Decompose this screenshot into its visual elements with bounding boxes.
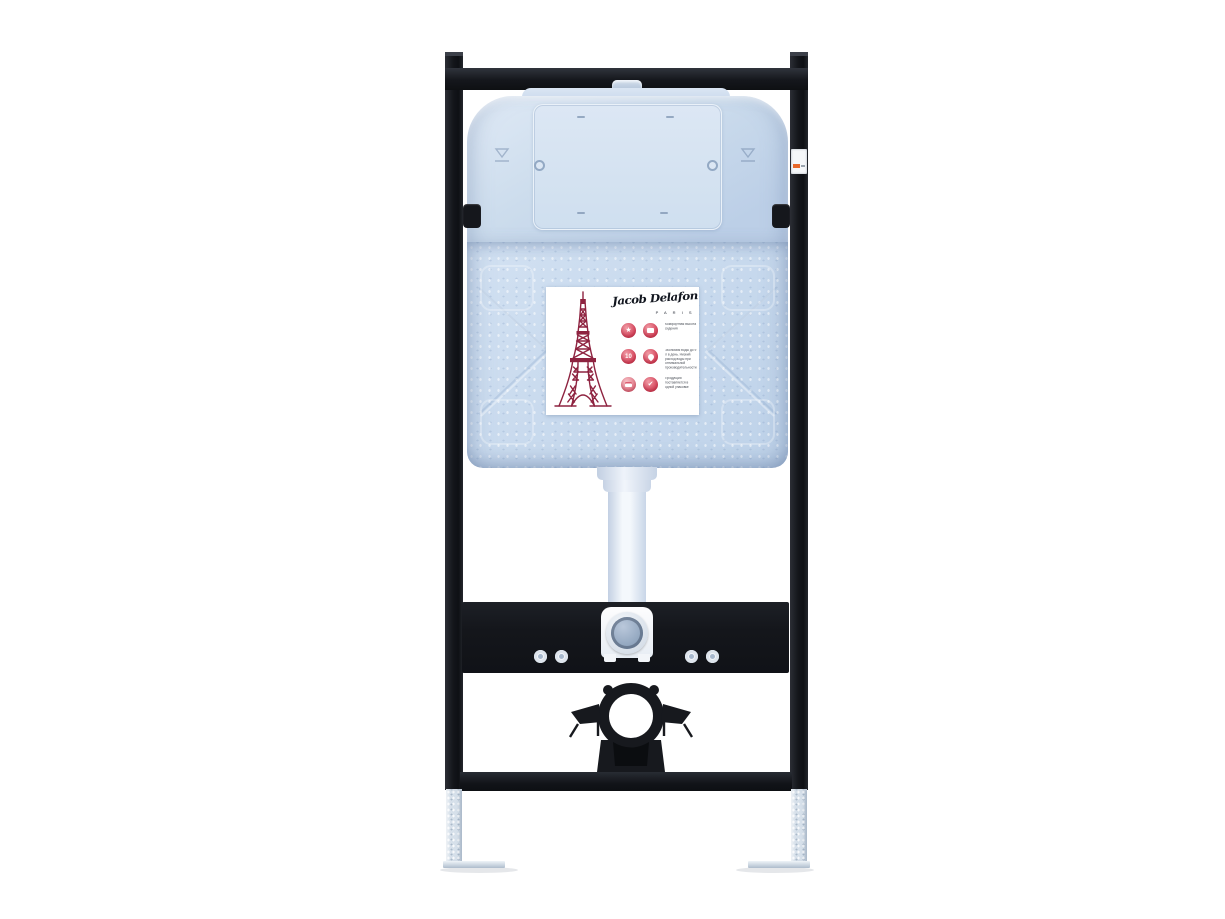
flush-outlet (611, 617, 643, 649)
water-drop-icon (643, 349, 658, 364)
package-icon (621, 377, 636, 392)
foot-post-right (791, 789, 807, 863)
mounting-rod-hole (555, 650, 568, 663)
flush-pipe (608, 492, 646, 603)
medal-star-icon: ★ (621, 323, 636, 338)
cistern-clip-right (772, 204, 790, 228)
waste-pipe-clamp (568, 680, 694, 776)
emboss-triangle-right (738, 146, 758, 164)
foot-plate-left (443, 861, 505, 868)
mounting-rod-hole (706, 650, 719, 663)
mounting-rod-hole (534, 650, 547, 663)
outlet-bracket-foot-right (638, 654, 650, 662)
panel-mark (666, 116, 674, 118)
frame-left-rail (445, 52, 463, 790)
frame-left-rail-cap (445, 52, 463, 56)
label-feature-text: Экономия воды до 9 л в день. Низкий расх… (665, 349, 697, 370)
foot-plate-right (748, 861, 810, 868)
product-photo-toilet-installation-frame: Jacob Delafon P A R I S ★ Комфортная выс… (0, 0, 1225, 919)
panel-mark (660, 212, 668, 214)
emboss-pattern-right (688, 260, 780, 452)
outlet-bracket-foot-left (604, 654, 616, 662)
brand-city-label: P A R I S (638, 310, 694, 315)
emboss-triangle-left (492, 146, 512, 164)
thumbs-up-icon: ✔ (643, 377, 658, 392)
label-feature-row: ★ Комфортная высота сидения (546, 323, 699, 349)
sticker-text-line (801, 165, 805, 167)
foot-post-left (446, 789, 462, 863)
cistern-clip-left (463, 204, 481, 228)
flush-pipe-collar-lower (603, 480, 651, 492)
badge-10-icon: 10 (621, 349, 636, 364)
seat-height-icon (643, 323, 658, 338)
flush-plate-access-panel (533, 104, 722, 230)
label-feature-row: ✔ Продукция поставляется в одной упаковк… (546, 377, 699, 403)
mounting-rod-hole (685, 650, 698, 663)
label-feature-text: Продукция поставляется в одной упаковке (665, 377, 697, 390)
frame-right-rail-cap (790, 52, 808, 56)
frame-bottom-bar (460, 772, 792, 791)
label-feature-text: Комфортная высота сидения (665, 323, 697, 332)
rail-info-sticker (791, 149, 807, 174)
label-feature-row: 10 Экономия воды до 9 л в день. Низкий р… (546, 349, 699, 375)
brand-label: Jacob Delafon P A R I S ★ Комфортная выс… (546, 287, 699, 415)
panel-mark (577, 212, 585, 214)
panel-screw-right (707, 160, 718, 171)
flush-pipe-collar (597, 467, 657, 480)
sticker-logo-mark (793, 164, 800, 168)
panel-mark (577, 116, 585, 118)
panel-screw-left (534, 160, 545, 171)
brand-signature: Jacob Delafon (610, 289, 699, 308)
